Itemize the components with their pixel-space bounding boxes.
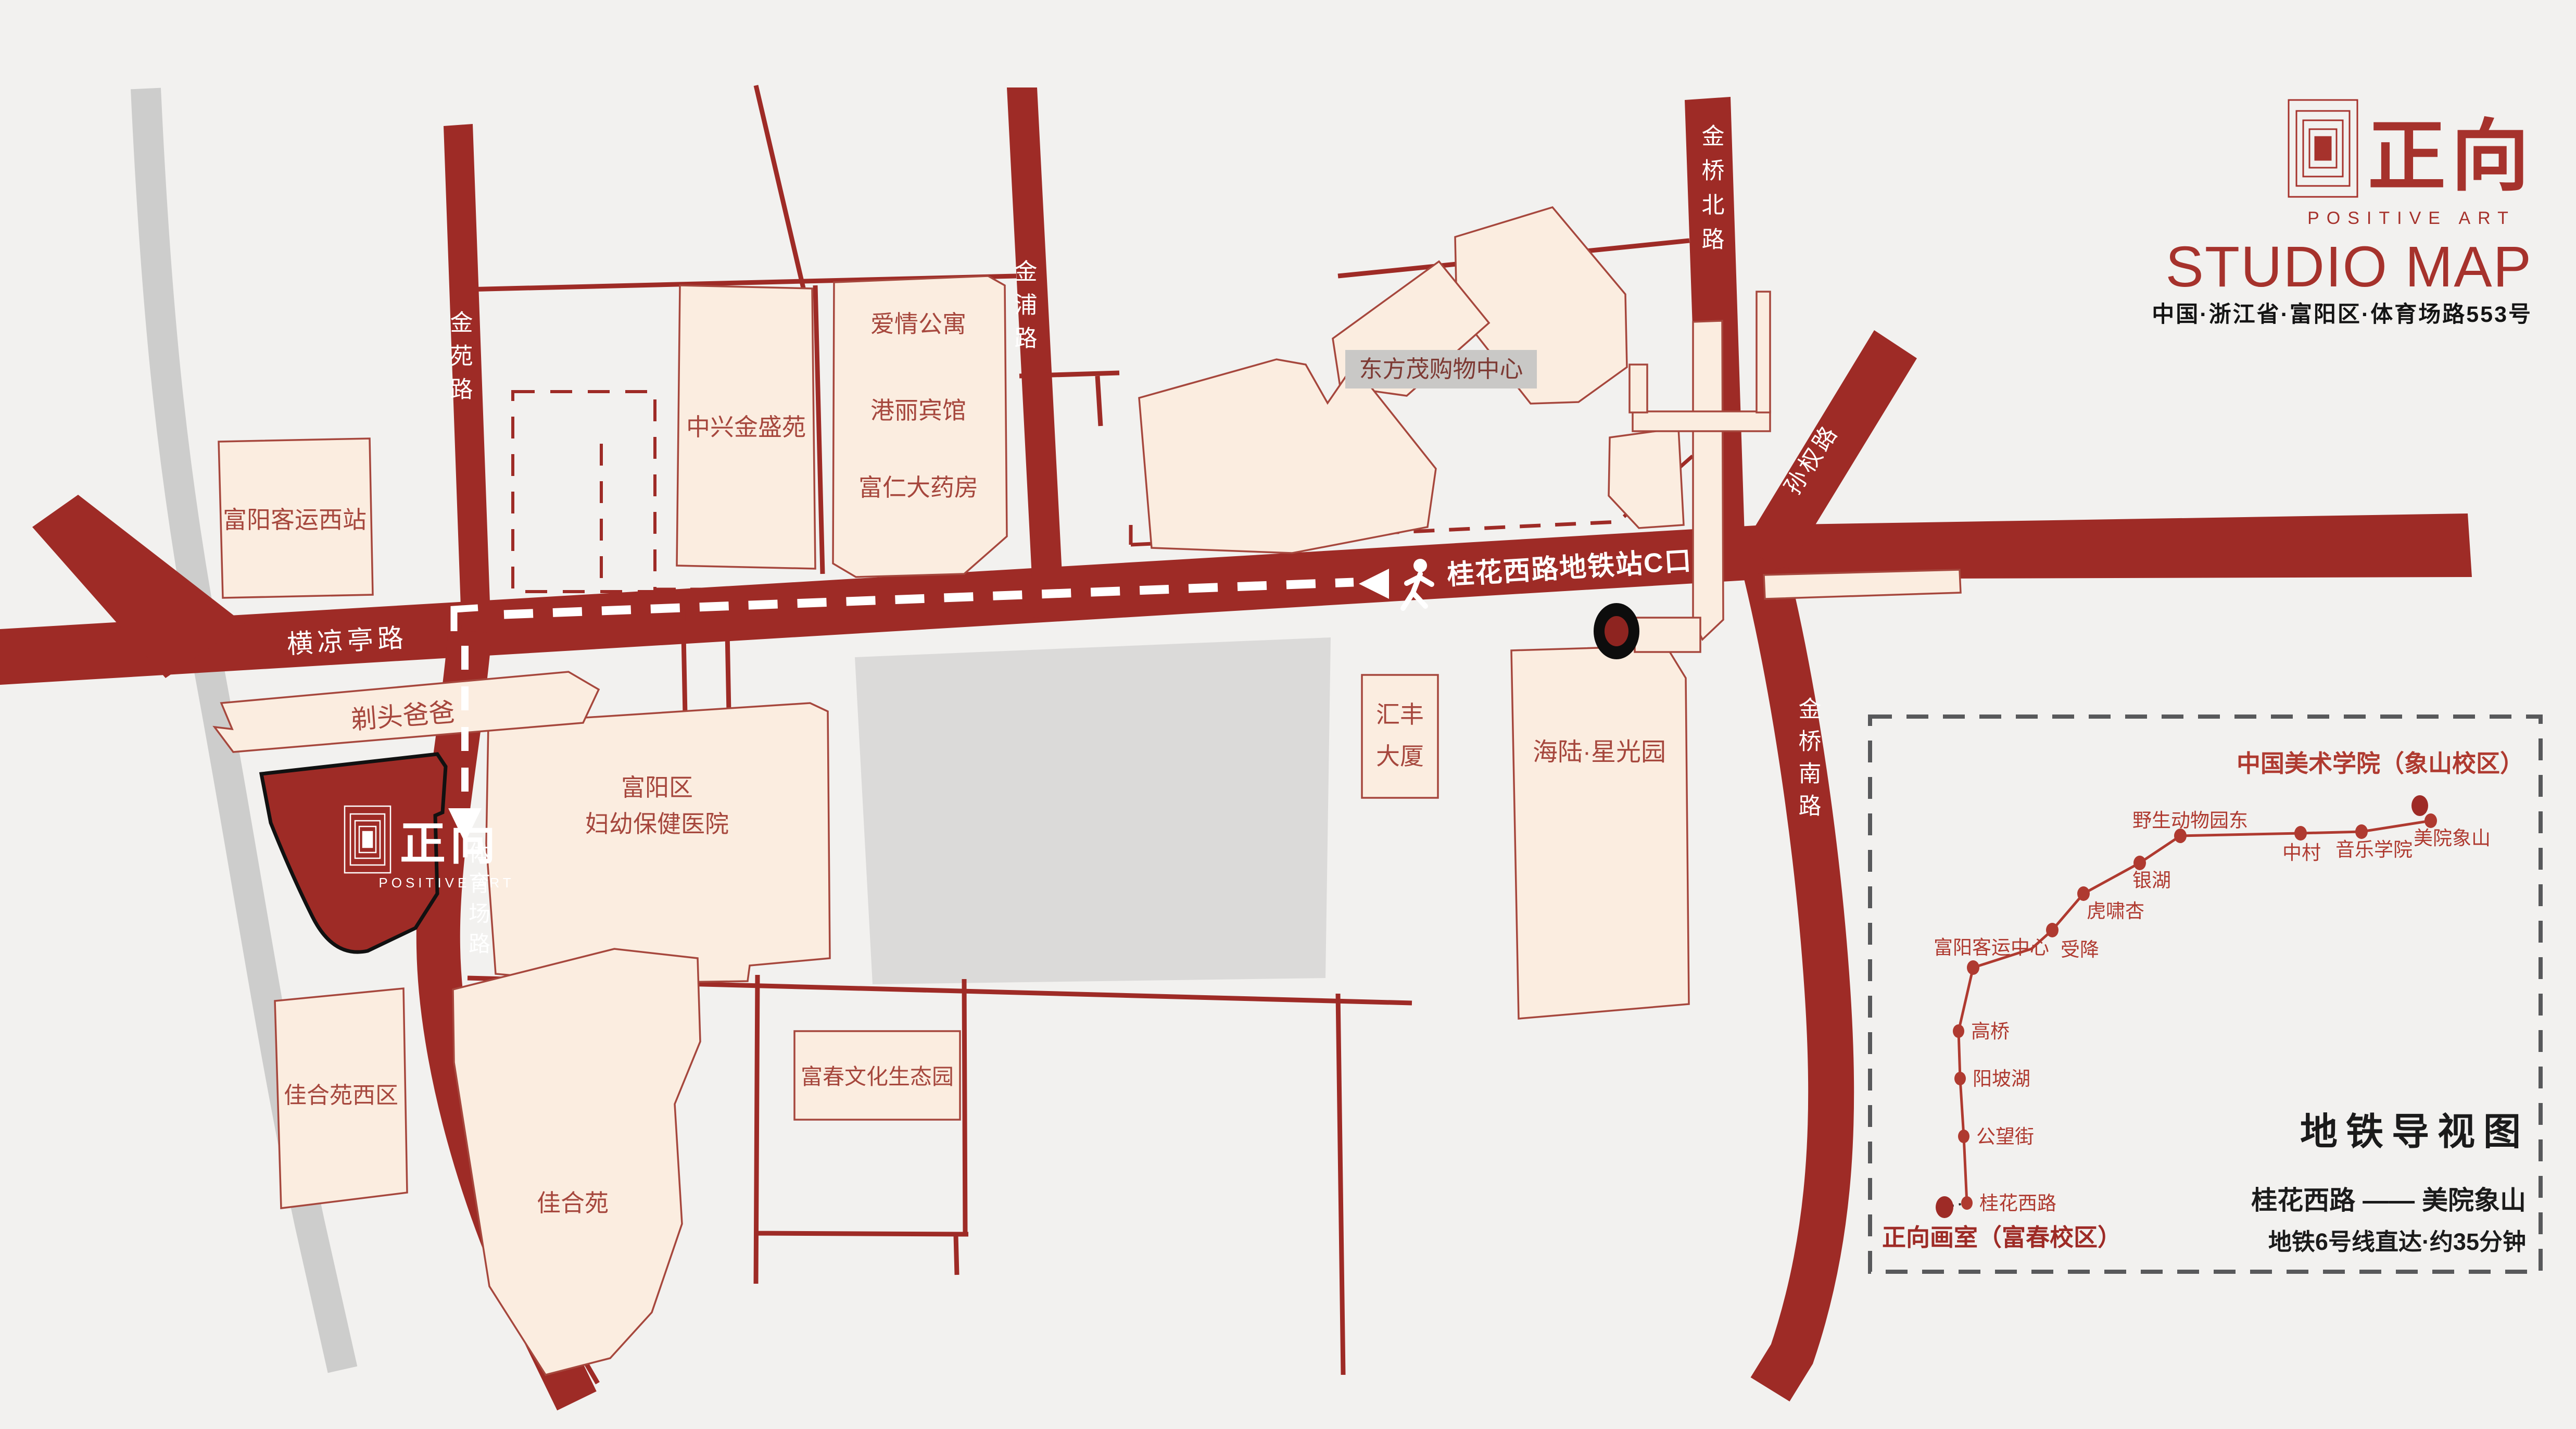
label-road-jinpu: 金浦路 [1011, 259, 1037, 359]
plaza-left-arm [1630, 365, 1647, 412]
station-label: 野生动物园东 [2132, 810, 2248, 831]
station-label: 公望街 [1976, 1126, 2034, 1147]
label-road-jinqiao-south: 金桥南路 [1795, 697, 1821, 826]
label-gangli: 港丽宾馆 [870, 397, 966, 424]
brand-logo-cn: 正向 [2368, 112, 2534, 200]
label-road-jinqiao-north: 金桥北路 [1698, 124, 1724, 261]
metro-start-label: 正向画室（富春校区） [1882, 1224, 2122, 1251]
label-zhongxing: 中兴金盛苑 [686, 413, 806, 441]
page-title: STUDIO MAP [2166, 235, 2533, 299]
station-label: 高桥 [1971, 1021, 2010, 1042]
label-aiqing: 爱情公寓 [870, 310, 966, 337]
station-label: 受降 [2061, 939, 2099, 960]
gray-plaza-block [855, 637, 1331, 984]
station-label: 富阳客运中心 [1934, 937, 2049, 958]
building-huifeng [1362, 675, 1438, 798]
studio-map-page: 正向 POSITIVE ART 金苑路 金浦路 金桥北路 金桥南路 体育场路 横… [0, 0, 2576, 1429]
metro-terminal-end-dot [2411, 795, 2428, 816]
metro-panel-route: 桂花西路 —— 美院象山 [2251, 1186, 2526, 1215]
label-road-jinyuan: 金苑路 [447, 310, 473, 410]
page-address: 中国·浙江省·富阳区·体育场路553号 [2152, 302, 2532, 327]
building-hailu [1511, 646, 1689, 1019]
metro-terminal-start-dot [1936, 1196, 1953, 1218]
plaza-crossbar [1633, 411, 1770, 431]
label-jiahe-west: 佳合苑西区 [284, 1083, 398, 1108]
label-jiahe: 佳合苑 [537, 1189, 609, 1217]
label-huifeng-2: 大厦 [1376, 743, 1424, 770]
station-label: 阳坡湖 [1973, 1068, 2030, 1089]
label-hailu: 海陆·星光园 [1533, 738, 1666, 766]
station-label: 美院象山 [2414, 828, 2491, 849]
label-huifeng-1: 汇丰 [1376, 701, 1424, 728]
metro-panel-note: 地铁6号线直达·约35分钟 [2268, 1229, 2526, 1255]
plaza-right-arm [1757, 292, 1770, 412]
label-hospital-1: 富阳区 [621, 774, 693, 801]
station-label: 虎啸杏 [2087, 900, 2144, 922]
station-label: 银湖 [2132, 870, 2171, 891]
brand-logo-en: POSITIVE ART [2307, 208, 2516, 228]
station-label: 音乐学院 [2335, 839, 2413, 860]
station-label: 中村 [2282, 842, 2321, 863]
studio-logo-en: POSITIVE ART [378, 875, 514, 891]
label-furen: 富仁大药房 [858, 474, 978, 501]
building-hospital [486, 703, 830, 983]
label-dongfangmao: 东方茂购物中心 [1359, 356, 1523, 382]
label-road-tiyuchang: 体育场路 [466, 842, 490, 962]
metro-end-label: 中国美术学院（象山校区） [2237, 750, 2524, 777]
station-label: 桂花西路 [1979, 1193, 2056, 1214]
plaza-center-bar [1693, 321, 1723, 640]
plaza-station-bar [1635, 618, 1700, 652]
label-fuchun-park: 富春文化生态园 [801, 1064, 954, 1089]
metro-exit-marker [1594, 603, 1639, 659]
label-fuyang-west-bus: 富阳客运西站 [223, 506, 367, 533]
label-hospital-2: 妇幼保健医院 [585, 810, 729, 837]
metro-panel-title: 地铁导视图 [2300, 1111, 2529, 1153]
mall-label-group: 东方茂购物中心 [1345, 350, 1537, 388]
